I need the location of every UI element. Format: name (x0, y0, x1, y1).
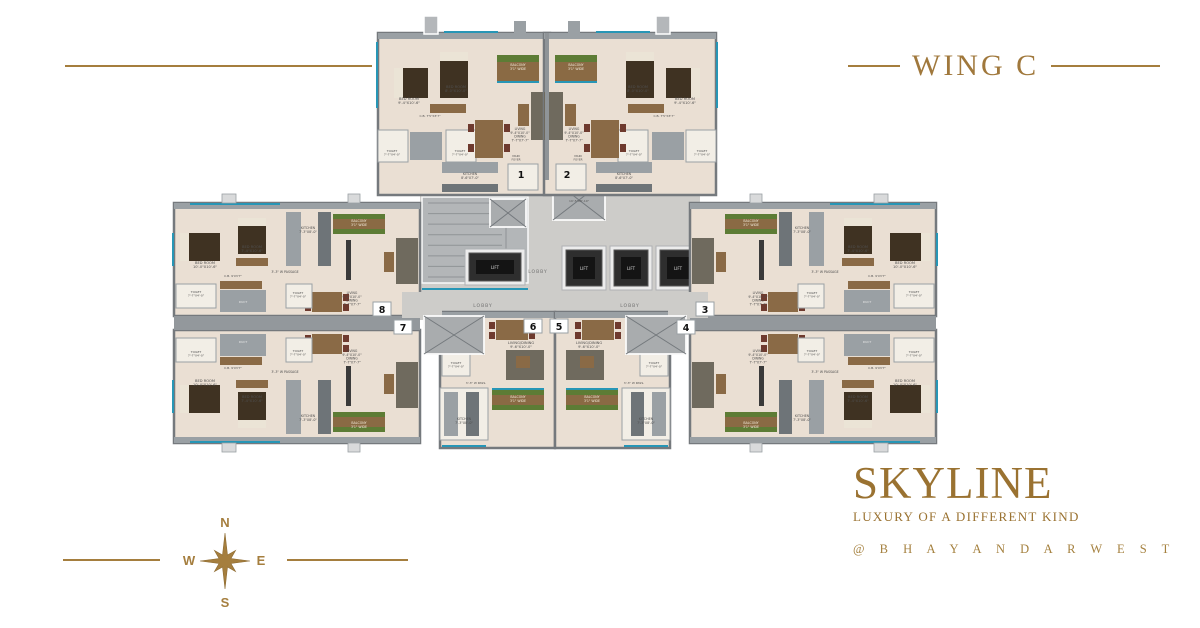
room-label: BED ROOM7'-4"X10'-6" (847, 395, 869, 403)
plan-rect (220, 281, 262, 289)
plan-rect (496, 320, 528, 340)
room-label: C.B. 9'X3'7" (868, 366, 886, 370)
room-label: 3'-3" W PASSAGE (811, 270, 838, 274)
unit-number: 3 (702, 305, 709, 316)
room-label: DUCT (239, 340, 248, 344)
unit-number: 5 (556, 322, 563, 333)
unit-number: 4 (683, 323, 690, 334)
plan-rect (180, 233, 189, 261)
room-label: DUCT (239, 300, 248, 304)
plan-rect (378, 33, 550, 39)
plan-rect (504, 124, 510, 132)
plan-rect (286, 212, 301, 266)
unit-number: 2 (564, 170, 571, 181)
unit-number: 6 (530, 322, 537, 333)
plan-rect (468, 124, 474, 132)
plan-rect (430, 104, 466, 113)
plan-rect (514, 21, 526, 33)
plan-rect (346, 240, 351, 280)
room-label: LIFT (491, 265, 500, 270)
room-label: BED ROOM9'-4"X10'-6" (398, 97, 420, 105)
room-label: KITCHEN8'-6"X7'-0" (615, 172, 633, 180)
room-label: BALCONY3'1" WIDE (510, 395, 526, 403)
plan-rect (516, 356, 530, 368)
room-label: BALCONY3'1" WIDE (351, 219, 367, 227)
brand-location: @ B H A Y A N D A R W E S T (853, 542, 1173, 557)
room-label: KITCHEN7'-3"X8'-0" (299, 414, 317, 422)
room-label: KITCHEN7'-3"X8'-0" (793, 226, 811, 234)
brand-name: SKYLINE (853, 461, 1173, 506)
room-label: C.B. 9'X3'7" (224, 274, 242, 278)
compass-rose-icon (200, 533, 250, 589)
room-label: BED ROOM10'-0"X10'-6" (193, 261, 217, 269)
unit-top (377, 16, 550, 195)
room-label: BED ROOM10'-0"X10'-6" (893, 379, 917, 387)
plan-rect (442, 184, 498, 192)
room-label: BALCONY3'1" WIDE (510, 63, 526, 71)
plan-rect (497, 55, 539, 62)
plan-rect (348, 194, 360, 203)
plan-rect (222, 443, 236, 452)
plan-rect (492, 405, 544, 410)
room-label: MAINFOYER (511, 154, 520, 161)
plan-rect (489, 332, 495, 339)
room-label: DUCT (863, 300, 872, 304)
plan-rect (402, 292, 442, 318)
compass-east-label: E (257, 553, 266, 568)
plan-rect (468, 144, 474, 152)
room-label: C.B. 9'X3'7" (224, 366, 242, 370)
room-label: 19'-5"X8'-10" (569, 199, 590, 203)
compass: N S W E (63, 503, 408, 618)
plan-rect (750, 194, 762, 203)
plan-rect (396, 238, 418, 284)
plan-rect (236, 258, 268, 266)
room-label: MAINFOYER (573, 154, 582, 161)
plan-rect (424, 16, 438, 34)
room-label: KITCHEN7'-3"X8'-0" (793, 414, 811, 422)
plan-rect (312, 292, 342, 312)
room-label: C.B. 7'5"X3'7" (653, 114, 675, 118)
room-label: BED ROOM10'-0"X10'-6" (893, 261, 917, 269)
room-label: 3'-3" W PASS. (466, 381, 486, 385)
plan-rect (333, 229, 385, 234)
plan-rect (378, 130, 408, 162)
wing-c-floorplan-page: WING C LOBBYLOBBYLOBBYLIFTLIFTLIFTLIFT19… (0, 0, 1200, 628)
compass-rule-left (63, 559, 160, 561)
plan-rect (504, 144, 510, 152)
compass-south-label: S (221, 595, 230, 610)
room-label: 3'-3" W PASS. (624, 381, 644, 385)
wing-title-rule-right (1051, 65, 1160, 67)
room-label: BALCONY3'1" WIDE (743, 421, 759, 429)
room-label: KITCHEN7'-3"X8'-0" (299, 226, 317, 234)
brand-block: SKYLINE LUXURY OF A DIFFERENT KIND @ B H… (853, 461, 1173, 557)
room-label: DUCT (863, 340, 872, 344)
room-label: BED ROOM9'-4"X10'-6" (674, 97, 696, 105)
plan-rect (348, 443, 360, 452)
room-label: LOBBY (528, 269, 548, 275)
room-label: C.B. 9'X3'7" (868, 274, 886, 278)
compass-north-label: N (220, 515, 229, 530)
unit-top-mirror (544, 16, 717, 195)
brand-tagline: LUXURY OF A DIFFERENT KIND (853, 509, 1173, 525)
room-label: BED ROOM8'-0"X10'-0" (445, 85, 467, 93)
room-label: LIFT (627, 266, 636, 271)
plan-rect (318, 212, 331, 266)
plan-rect (489, 322, 495, 329)
compass-west-label: W (183, 553, 196, 568)
plan-rect (394, 68, 403, 98)
plan-rect (466, 392, 479, 436)
room-label: LOBBY (620, 303, 640, 309)
plan-rect (874, 194, 888, 203)
room-label: BED ROOM7'-4"X10'-6" (241, 395, 263, 403)
plan-rect (874, 443, 888, 452)
room-label: KITCHEN7'-3"X8'-0" (455, 417, 473, 425)
room-label: KITCHEN8'-6"X7'-0" (461, 172, 479, 180)
room-label: BED ROOM10'-0"X10'-6" (193, 379, 217, 387)
room-label: 3'-3" W PASSAGE (271, 270, 298, 274)
plan-rect (384, 252, 394, 272)
room-label: BALCONY3'1" WIDE (351, 421, 367, 429)
plan-rect (475, 120, 503, 158)
room-label: BALCONY3'1" WIDE (568, 63, 584, 71)
plan-rect (238, 218, 266, 226)
room-label: BED ROOM7'-4"X10'-6" (847, 245, 869, 253)
unit-number: 1 (518, 170, 525, 181)
room-label: BED ROOM8'-0"X10'-0" (627, 85, 649, 93)
plan-rect (750, 443, 762, 452)
plan-rect (410, 132, 442, 160)
compass-rule-right (287, 559, 408, 561)
floor-plan: LOBBYLOBBYLOBBYLIFTLIFTLIFTLIFT19'-5"X8'… (170, 10, 940, 455)
room-label: 3'-3" W PASSAGE (811, 370, 838, 374)
room-label: LIFT (580, 266, 589, 271)
room-label: BALCONY3'1" WIDE (584, 395, 600, 403)
room-label: LIFT (674, 266, 683, 271)
unit-number: 7 (400, 323, 407, 334)
room-label: C.B. 7'5"X3'7" (419, 114, 441, 118)
room-label: 3'-3" W PASSAGE (271, 370, 298, 374)
room-label: KITCHEN7'-3"X8'-0" (637, 417, 655, 425)
plan-rect (545, 33, 549, 180)
plan-rect (222, 194, 236, 203)
plan-rect (440, 52, 468, 61)
room-label: LIVING/DINING9'-6"X10'-0" (576, 341, 603, 349)
room-label: BED ROOM7'-4"X10'-6" (241, 245, 263, 253)
room-label: LIVING/DINING9'-6"X10'-0" (508, 341, 535, 349)
unit-number: 8 (379, 305, 386, 316)
plan-rect (518, 104, 529, 126)
room-label: LOBBY (473, 303, 493, 309)
plan-rect (444, 392, 458, 436)
room-label: BALCONY3'1" WIDE (743, 219, 759, 227)
